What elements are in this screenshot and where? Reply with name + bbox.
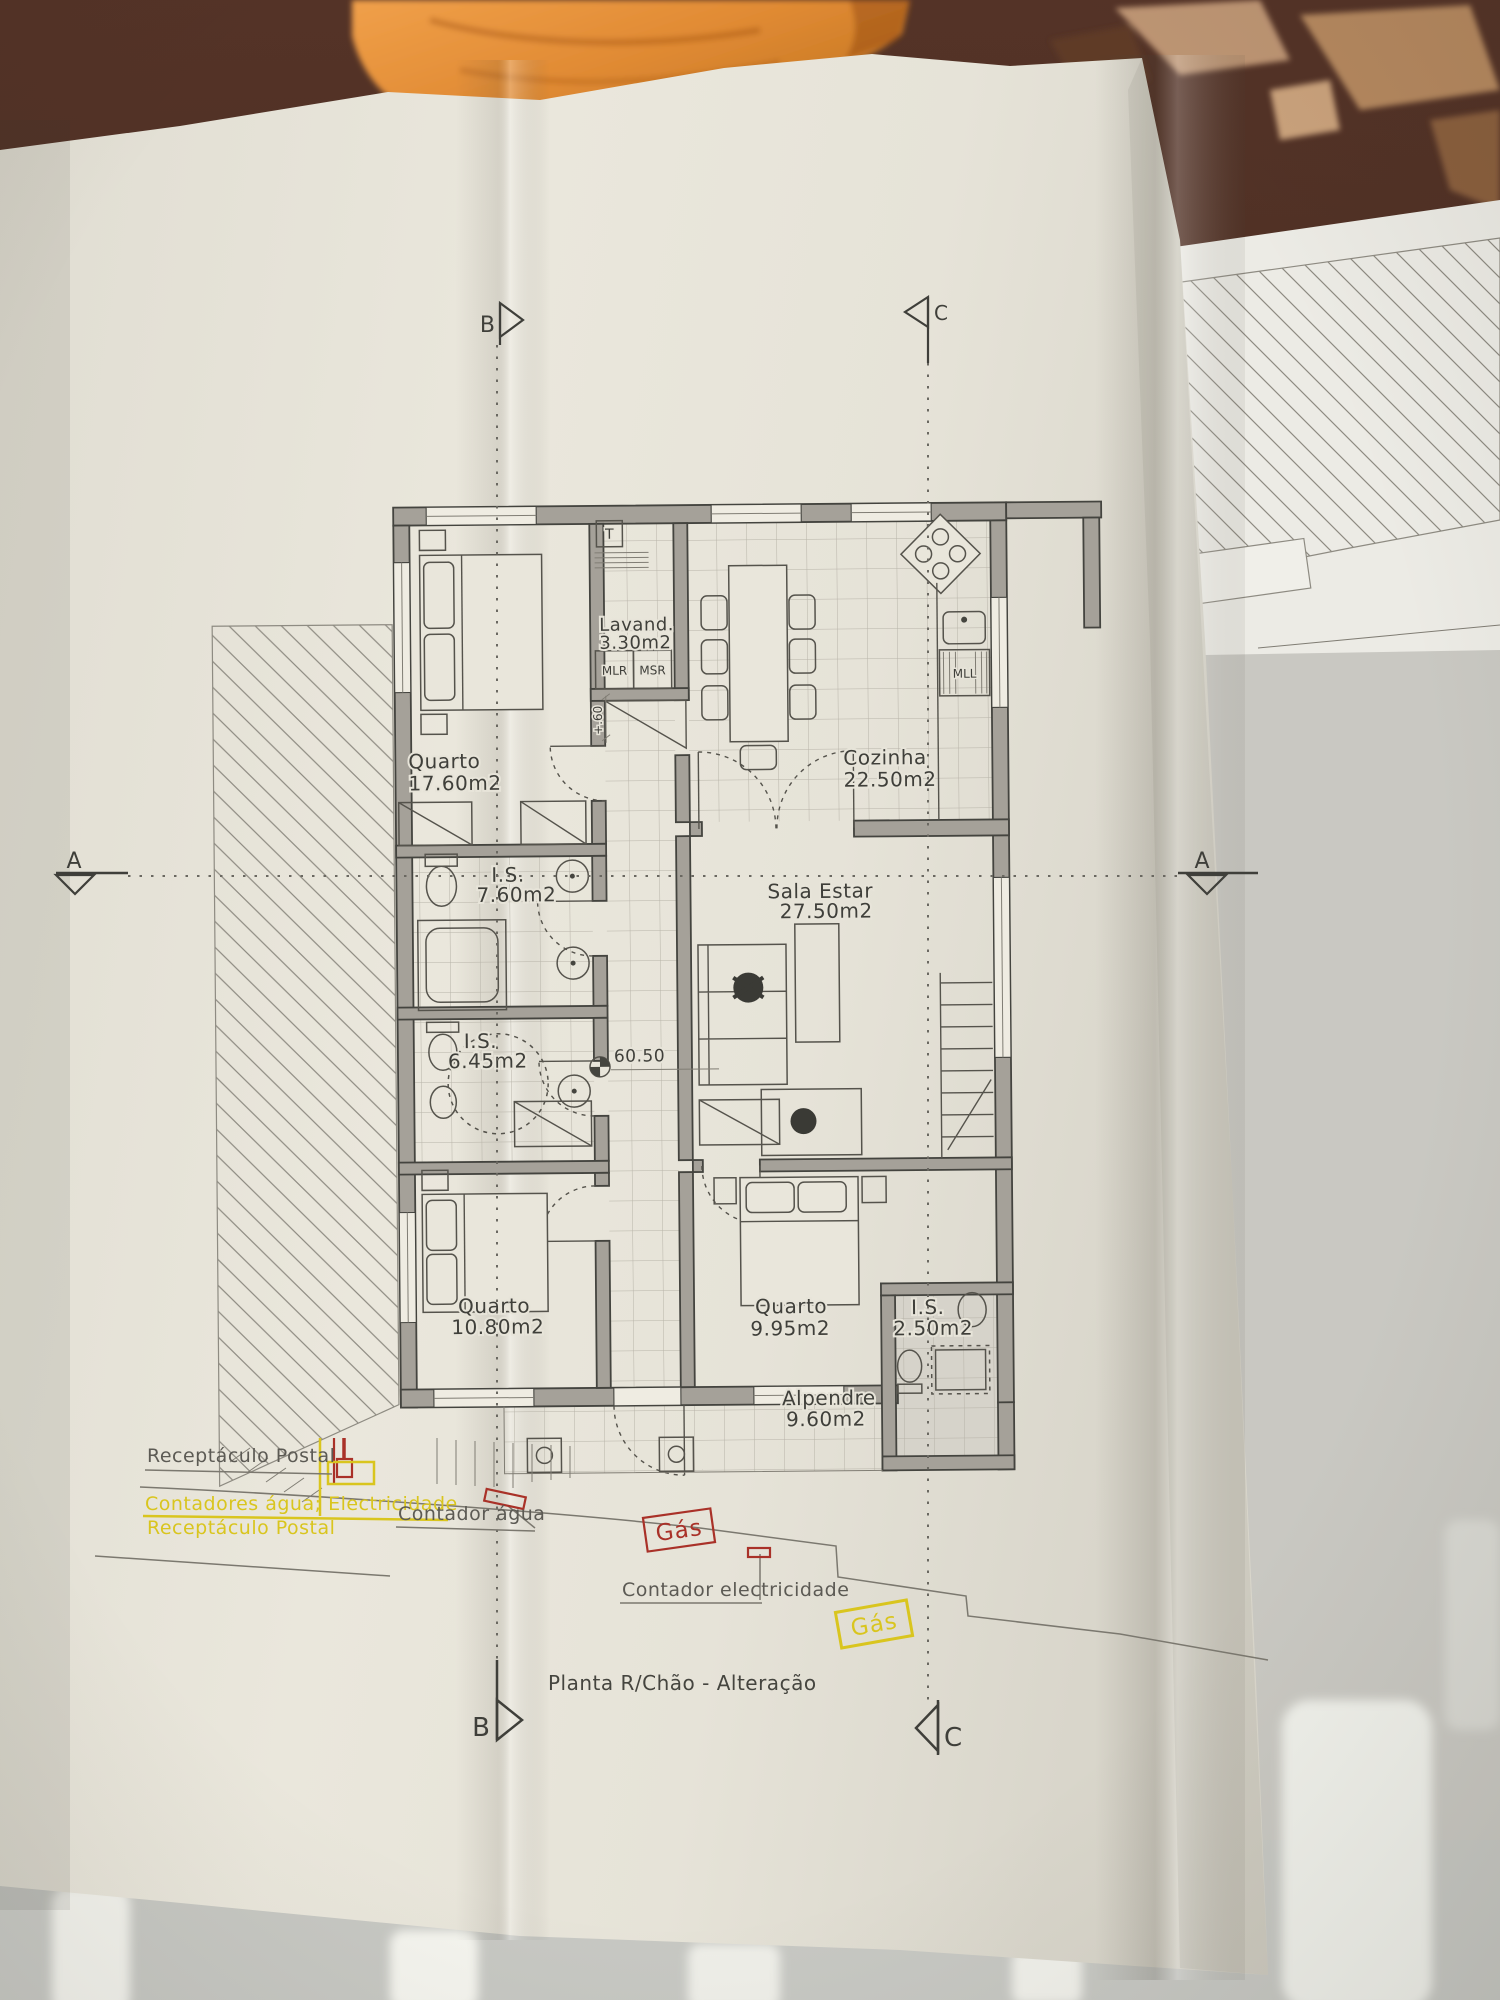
- floorplan-scene: MLL: [0, 0, 1500, 2000]
- photo-of-floorplan: MLL: [0, 0, 1500, 2000]
- vignette-overlay: [0, 0, 1500, 2000]
